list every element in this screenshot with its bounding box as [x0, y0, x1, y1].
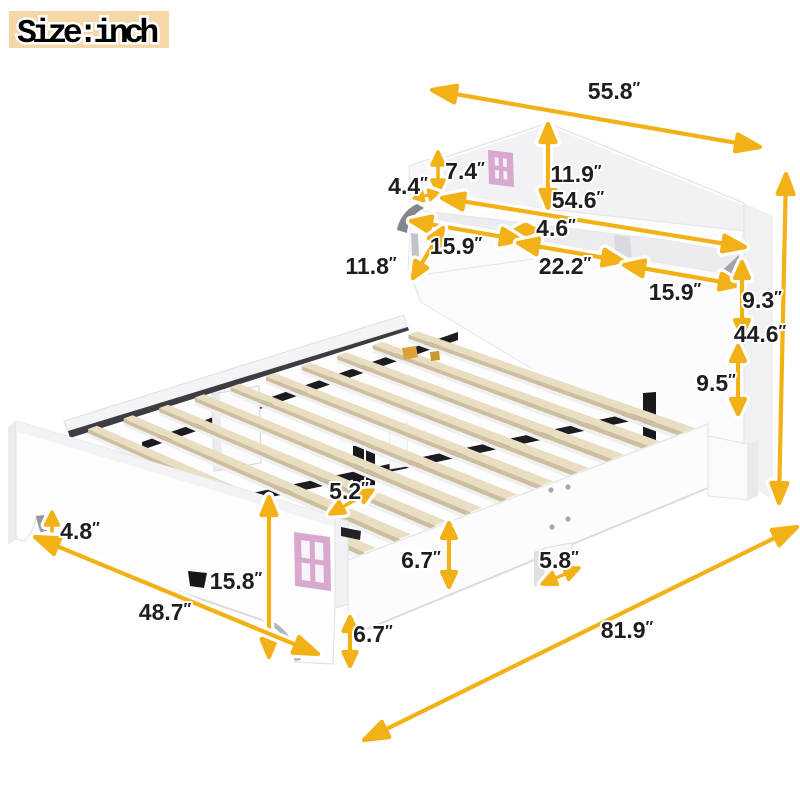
svg-text:Size:inch: Size:inch — [17, 15, 157, 52]
